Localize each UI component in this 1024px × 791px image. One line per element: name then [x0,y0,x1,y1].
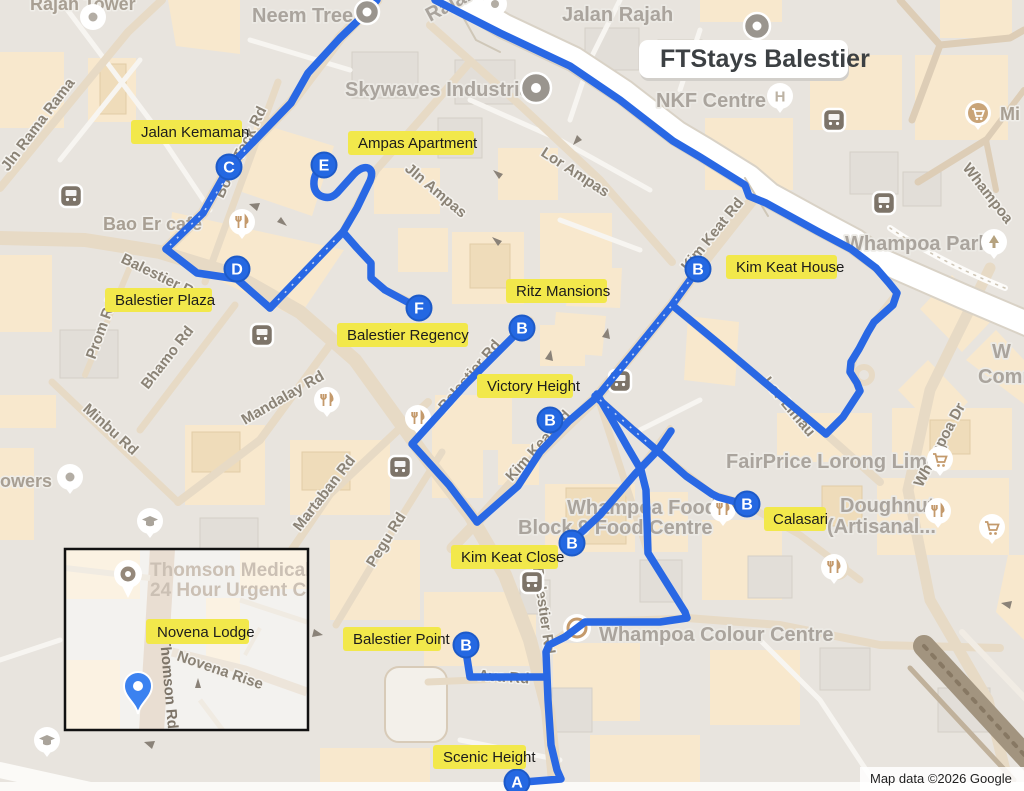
svg-text:Whampoa Park: Whampoa Park [845,233,990,255]
svg-text:Jalan Kemaman: Jalan Kemaman [141,124,249,141]
svg-text:Ampas Apartment: Ampas Apartment [358,135,478,152]
svg-text:Skywaves Industrial: Skywaves Industrial [345,79,536,101]
svg-text:Block 9 Food Centre: Block 9 Food Centre [518,517,712,539]
svg-text:Whampoa Colour Centre: Whampoa Colour Centre [599,624,833,646]
svg-text:B: B [544,413,556,430]
svg-text:Ritz Mansions: Ritz Mansions [516,283,610,300]
svg-text:C: C [223,160,235,177]
svg-text:Mi: Mi [1000,104,1020,124]
svg-text:B: B [741,497,753,514]
svg-text:Kim Keat Close: Kim Keat Close [461,549,564,566]
svg-text:D: D [231,262,243,279]
svg-text:Jalan Rajah: Jalan Rajah [562,4,673,26]
svg-text:Balestier Point: Balestier Point [353,631,451,648]
svg-text:Calasari: Calasari [773,511,828,528]
svg-text:W: W [992,341,1011,363]
svg-text:(Artisanal...: (Artisanal... [827,516,936,538]
svg-text:FTStays Balestier: FTStays Balestier [660,45,870,73]
svg-text:Novena Lodge: Novena Lodge [157,624,255,641]
svg-text:Scenic Height: Scenic Height [443,749,536,766]
svg-text:A: A [511,775,523,791]
svg-text:B: B [516,321,528,338]
svg-text:Thomson Medical: Thomson Medical [150,560,310,581]
svg-text:Balestier Regency: Balestier Regency [347,327,469,344]
svg-text:Whampoa Food: Whampoa Food [567,497,717,519]
svg-text:Map data ©2026 Google: Map data ©2026 Google [870,771,1012,786]
svg-text:Neem Tree: Neem Tree [252,5,353,27]
svg-text:E: E [319,158,330,175]
svg-text:B: B [460,638,472,655]
svg-text:Kim Keat House: Kim Keat House [736,259,844,276]
svg-text:Commun: Commun [978,366,1024,388]
svg-text:Balestier Plaza: Balestier Plaza [115,292,216,309]
svg-text:owers: owers [0,471,52,491]
svg-text:B: B [566,536,578,553]
svg-text:24 Hour Urgent Ca: 24 Hour Urgent Ca [150,580,317,601]
svg-text:H: H [775,89,786,106]
svg-text:Doughnut: Doughnut [840,495,935,517]
svg-text:Victory Height: Victory Height [487,378,581,395]
svg-text:NKF Centre: NKF Centre [656,90,766,112]
svg-text:F: F [414,301,424,318]
svg-text:B: B [692,262,704,279]
